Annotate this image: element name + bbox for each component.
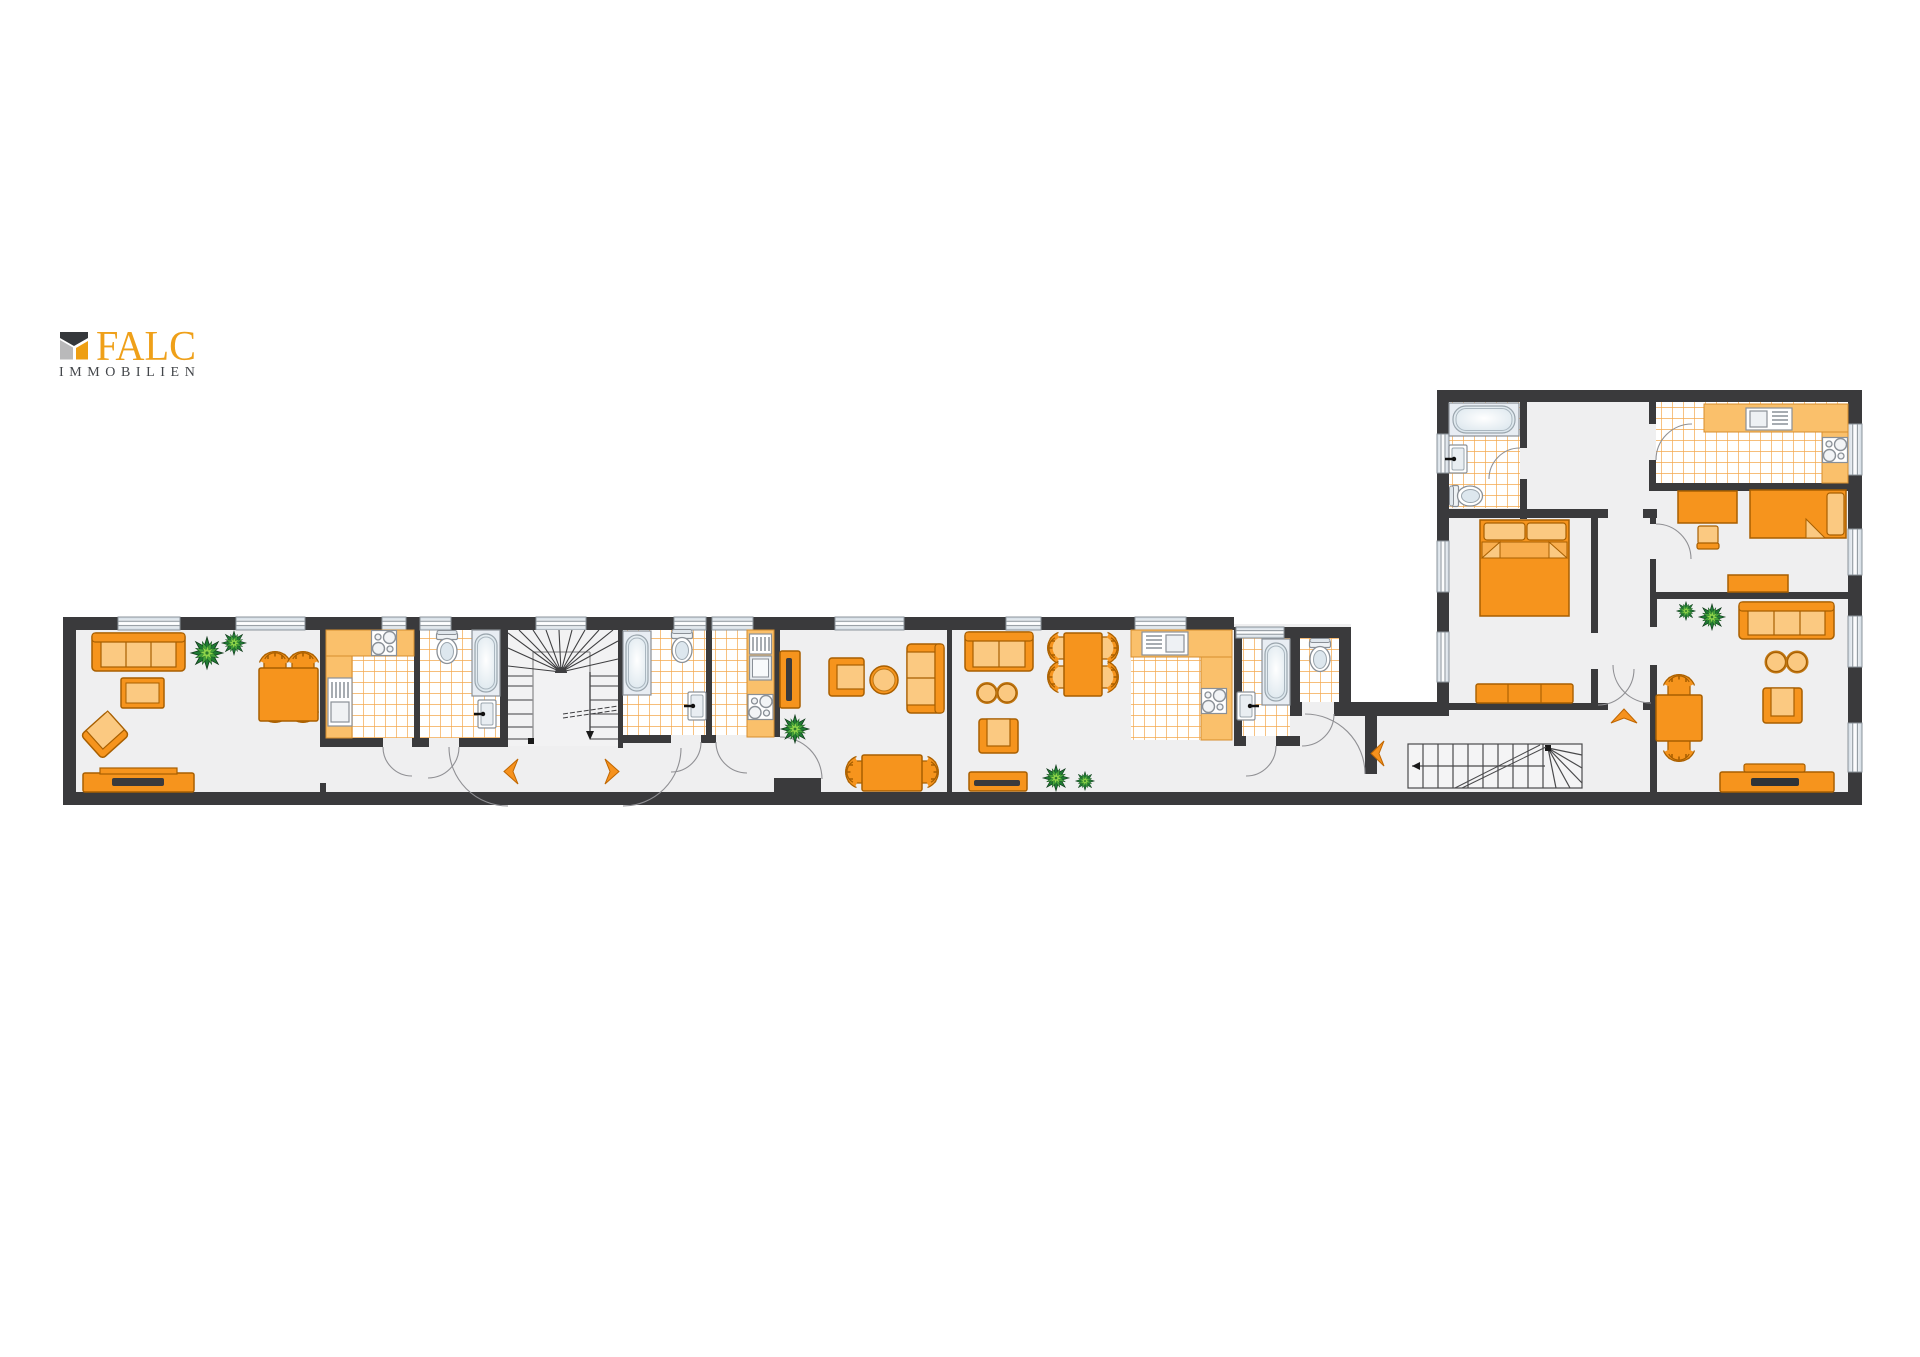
svg-text:FALC: FALC (96, 324, 196, 370)
svg-text:IMMOBILIEN: IMMOBILIEN (59, 365, 199, 380)
